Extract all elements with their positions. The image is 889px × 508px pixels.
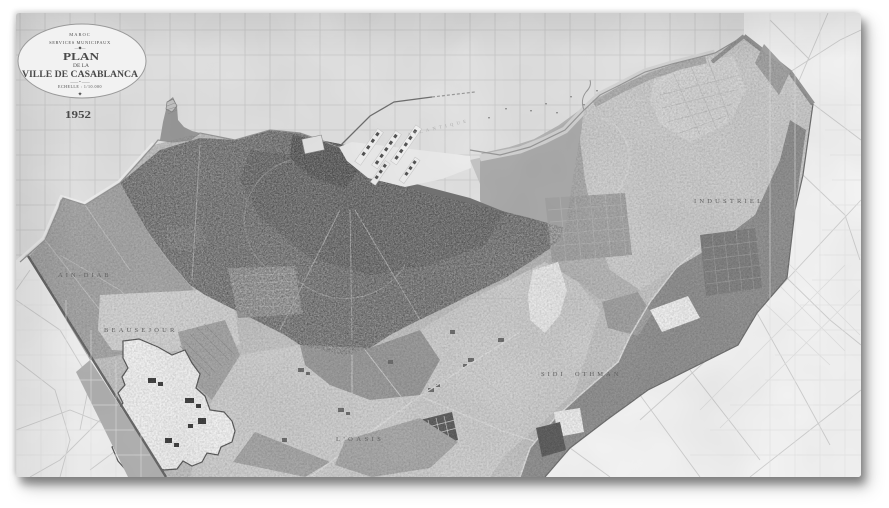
svg-text:ECHELLE : 1/10.000: ECHELLE : 1/10.000 bbox=[58, 84, 102, 89]
svg-text:DE LA: DE LA bbox=[73, 63, 89, 69]
svg-text:SIDI OTHMAN: SIDI OTHMAN bbox=[541, 371, 621, 378]
svg-text:1952: 1952 bbox=[65, 110, 91, 121]
svg-text:BEAUSEJOUR: BEAUSEJOUR bbox=[104, 327, 178, 334]
svg-text:—◆—: —◆— bbox=[73, 45, 86, 50]
svg-text:✦: ✦ bbox=[77, 91, 82, 98]
svg-text:MAROC: MAROC bbox=[69, 32, 91, 37]
svg-text:PLAN: PLAN bbox=[63, 52, 100, 63]
svg-text:AIN-DIAB: AIN-DIAB bbox=[58, 272, 112, 279]
svg-text:L'OASIS: L'OASIS bbox=[336, 436, 384, 443]
svg-text:INDUSTRIEL: INDUSTRIEL bbox=[694, 198, 764, 205]
